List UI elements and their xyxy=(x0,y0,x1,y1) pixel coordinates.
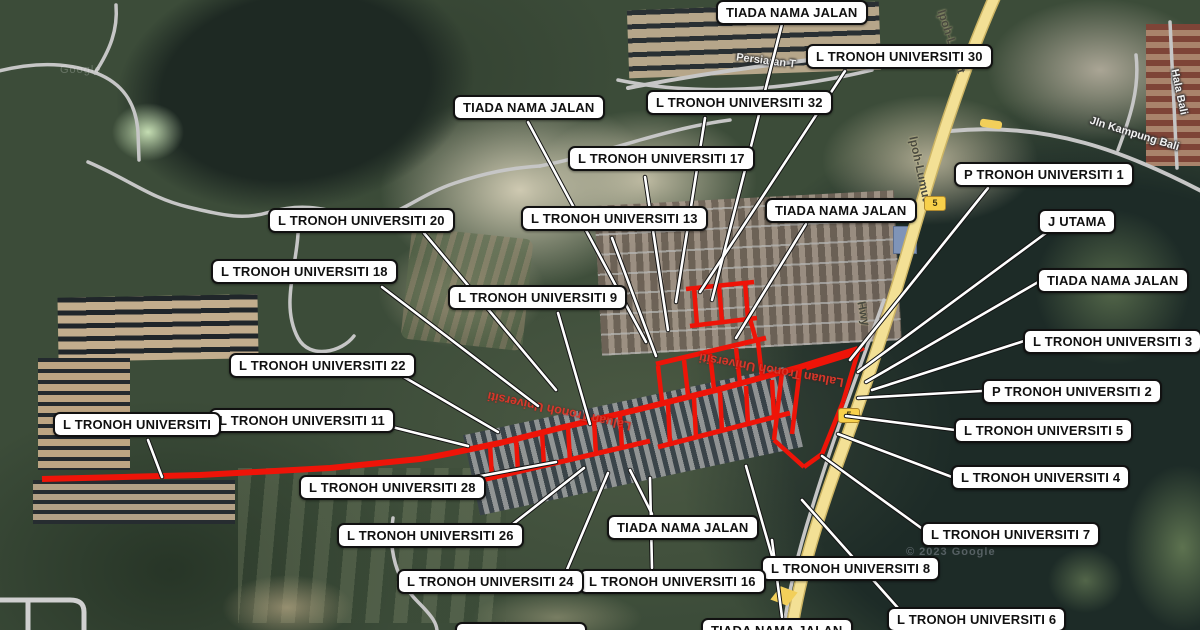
map-label-l-tronoh-universiti-9[interactable]: L TRONOH UNIVERSITI 9 xyxy=(448,285,627,310)
map-label-l-tronoh-universiti[interactable]: L TRONOH UNIVERSITI xyxy=(53,412,221,437)
map-label-tiada-nama-jalan-b[interactable]: TIADA NAMA JALAN xyxy=(765,198,917,223)
map-label-p-tronoh-universiti-2[interactable]: P TRONOH UNIVERSITI 2 xyxy=(982,379,1162,404)
map-label-l-tronoh-universiti-20[interactable]: L TRONOH UNIVERSITI 20 xyxy=(268,208,455,233)
map-label-l-tronoh-universiti-13[interactable]: L TRONOH UNIVERSITI 13 xyxy=(521,206,708,231)
map-label-l-tronoh-universiti-30[interactable]: L TRONOH UNIVERSITI 30 xyxy=(806,44,993,69)
map-label-bottom-partial[interactable] xyxy=(455,622,587,630)
map-label-tiada-nama-jalan-d[interactable]: TIADA NAMA JALAN xyxy=(607,515,759,540)
map-label-l-tronoh-universiti-7[interactable]: L TRONOH UNIVERSITI 7 xyxy=(921,522,1100,547)
map-label-l-tronoh-universiti-16[interactable]: L TRONOH UNIVERSITI 16 xyxy=(579,569,766,594)
satellite-map[interactable]: Persiaran T Laluan Tronoh Universiti Lal… xyxy=(0,0,1200,630)
map-label-l-tronoh-universiti-5[interactable]: L TRONOH UNIVERSITI 5 xyxy=(954,418,1133,443)
map-label-l-tronoh-universiti-6[interactable]: L TRONOH UNIVERSITI 6 xyxy=(887,607,1066,630)
map-label-l-tronoh-universiti-28[interactable]: L TRONOH UNIVERSITI 28 xyxy=(299,475,486,500)
map-label-l-tronoh-universiti-22[interactable]: L TRONOH UNIVERSITI 22 xyxy=(229,353,416,378)
map-label-l-tronoh-universiti-4[interactable]: L TRONOH UNIVERSITI 4 xyxy=(951,465,1130,490)
map-label-l-tronoh-universiti-18[interactable]: L TRONOH UNIVERSITI 18 xyxy=(211,259,398,284)
map-label-l-tronoh-universiti-8[interactable]: L TRONOH UNIVERSITI 8 xyxy=(761,556,940,581)
map-label-p-tronoh-universiti-1[interactable]: P TRONOH UNIVERSITI 1 xyxy=(954,162,1134,187)
map-label-tiada-nama-jalan-a[interactable]: TIADA NAMA JALAN xyxy=(453,95,605,120)
map-label-l-tronoh-universiti-24[interactable]: L TRONOH UNIVERSITI 24 xyxy=(397,569,584,594)
map-label-l-tronoh-universiti-11[interactable]: L TRONOH UNIVERSITI 11 xyxy=(209,408,395,433)
map-label-tiada-nama-jalan-c[interactable]: TIADA NAMA JALAN xyxy=(1037,268,1189,293)
map-label-tiada-nama-jalan-e[interactable]: TIADA NAMA JALAN xyxy=(701,618,853,630)
map-label-l-tronoh-universiti-26[interactable]: L TRONOH UNIVERSITI 26 xyxy=(337,523,524,548)
map-label-l-tronoh-universiti-3[interactable]: L TRONOH UNIVERSITI 3 xyxy=(1023,329,1200,354)
map-label-l-tronoh-universiti-32[interactable]: L TRONOH UNIVERSITI 32 xyxy=(646,90,833,115)
map-label-j-utama[interactable]: J UTAMA xyxy=(1038,209,1116,234)
map-label-tiada-nama-jalan-top[interactable]: TIADA NAMA JALAN xyxy=(716,0,868,25)
map-label-l-tronoh-universiti-17[interactable]: L TRONOH UNIVERSITI 17 xyxy=(568,146,755,171)
